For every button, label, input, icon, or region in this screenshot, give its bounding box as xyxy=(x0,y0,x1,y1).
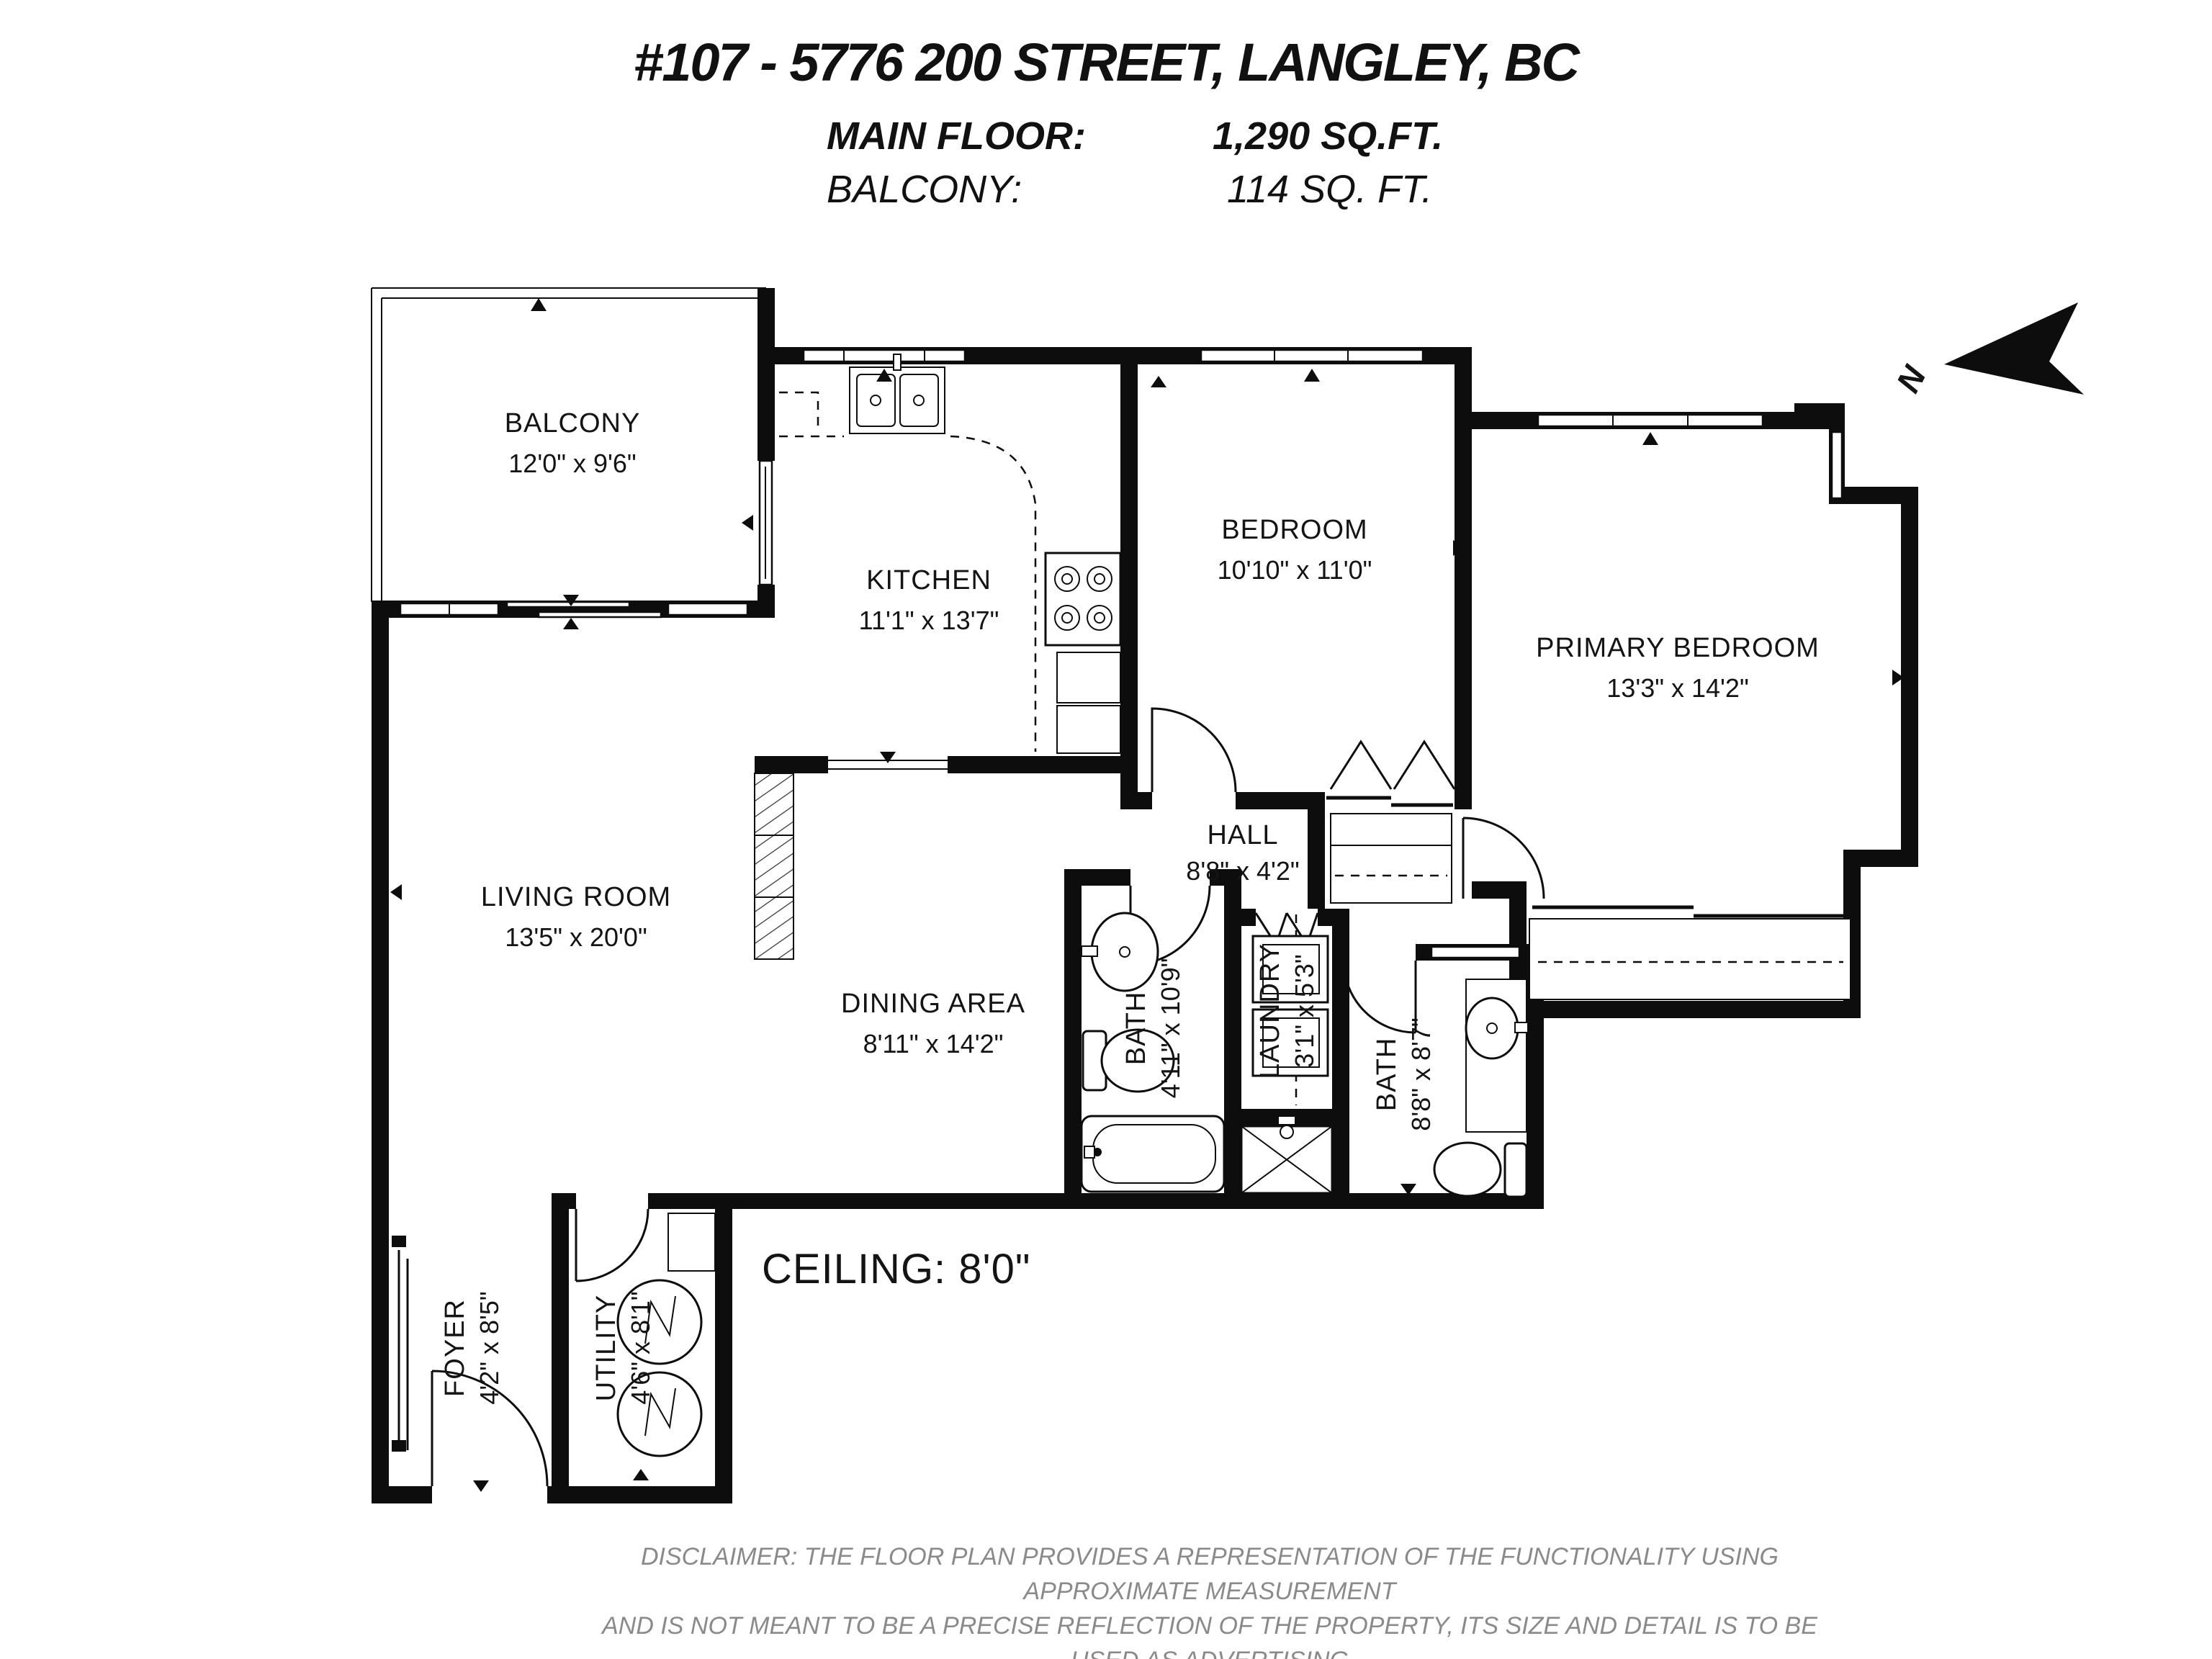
disclaimer: DISCLAIMER: THE FLOOR PLAN PROVIDES A RE… xyxy=(598,1539,1822,1659)
room-label-balcony: BALCONY 12'0" x 9'6" xyxy=(505,408,641,478)
bathtub-icon xyxy=(1082,1116,1224,1192)
chimney-hatch xyxy=(755,773,793,959)
room-dims: 4'6" x 8'1" xyxy=(626,1291,655,1404)
room-dims: 13'5" x 20'0" xyxy=(505,922,647,952)
north-label: N xyxy=(1889,359,1933,398)
primary-closet xyxy=(1529,919,1851,999)
room-name: BALCONY xyxy=(505,408,641,439)
room-label-living-room: LIVING ROOM 13'5" x 20'0" xyxy=(481,882,671,952)
room-label-dining-area: DINING AREA 8'11" x 14'2" xyxy=(841,989,1025,1058)
room-dims: 4'2" x 8'5" xyxy=(475,1291,504,1404)
room-name: UTILITY xyxy=(591,1295,621,1401)
room-name: KITCHEN xyxy=(866,565,992,595)
room-name: DINING AREA xyxy=(841,989,1025,1019)
room-name: FOYER xyxy=(440,1299,470,1397)
bath1-sink-icon xyxy=(1082,913,1158,991)
floor-plan-drawing: N BALCONY 12'0" x 9'6" KITCHEN 11'1" x 1… xyxy=(0,0,2212,1659)
room-dims: 8'11" x 14'2" xyxy=(863,1029,1004,1058)
closet-rod-icon xyxy=(1331,742,1455,789)
sliding-door xyxy=(399,1250,408,1450)
window xyxy=(668,603,747,615)
kitchen-corner-counter xyxy=(779,392,818,432)
room-name: LIVING ROOM xyxy=(481,882,671,912)
room-label-primary-bedroom: PRIMARY BEDROOM 13'3" x 14'2" xyxy=(1536,633,1820,703)
room-label-bedroom: BEDROOM 10'10" x 11'0" xyxy=(1218,515,1372,585)
room-label-bath2: BATH 8'8" x 8'7" xyxy=(1372,1017,1436,1130)
ceiling-note: CEILING: 8'0" xyxy=(762,1246,1030,1292)
room-name: PRIMARY BEDROOM xyxy=(1536,633,1820,663)
bedroom-door-arc xyxy=(1152,709,1236,792)
window xyxy=(1538,415,1763,426)
disclaimer-line: DISCLAIMER: THE FLOOR PLAN PROVIDES A RE… xyxy=(598,1539,1822,1609)
room-label-kitchen: KITCHEN 11'1" x 13'7" xyxy=(859,565,999,635)
kitchen-sink-icon xyxy=(850,354,945,433)
window xyxy=(1201,350,1423,361)
balcony-railing xyxy=(372,288,766,602)
dishwasher-icon xyxy=(1057,652,1120,703)
bedroom-closet xyxy=(1331,742,1455,903)
room-label-foyer: FOYER 4'2" x 8'5" xyxy=(440,1291,504,1404)
room-dims: 8'8" x 8'7" xyxy=(1406,1017,1436,1130)
room-dims: 8'8" x 4'2" xyxy=(1186,856,1299,886)
refrigerator-icon xyxy=(1057,706,1120,753)
north-arrow-icon xyxy=(1944,302,2084,395)
room-dims: 11'1" x 13'7" xyxy=(859,606,999,635)
disclaimer-line: AND IS NOT MEANT TO BE A PRECISE REFLECT… xyxy=(598,1609,1822,1659)
utility-door-arc xyxy=(576,1209,648,1281)
window xyxy=(1431,947,1519,958)
compass: N xyxy=(1889,302,2084,398)
bath2-toilet-icon xyxy=(1434,1143,1527,1197)
room-name: BEDROOM xyxy=(1221,515,1367,545)
sliding-door xyxy=(507,602,629,607)
stove-icon xyxy=(1046,553,1120,645)
shower-icon xyxy=(1241,1116,1332,1193)
room-dims: 13'3" x 14'2" xyxy=(1606,673,1748,703)
window xyxy=(804,350,965,361)
room-name: BATH xyxy=(1372,1038,1402,1112)
room-dims: 10'10" x 11'0" xyxy=(1218,555,1372,585)
floor-plan-page: #107 - 5776 200 STREET, LANGLEY, BC MAIN… xyxy=(0,0,2212,1659)
sliding-door xyxy=(539,612,661,617)
room-dims: 4'11" x 10'9" xyxy=(1156,958,1185,1099)
utility-shelf xyxy=(668,1213,715,1271)
room-name: LAUNDRY xyxy=(1255,943,1285,1079)
room-dims: 12'0" x 9'6" xyxy=(508,449,636,478)
room-name: HALL xyxy=(1207,820,1278,850)
window xyxy=(1832,432,1842,498)
room-dims: 3'1" x 5'3" xyxy=(1290,954,1319,1067)
room-label-hall: HALL 8'8" x 4'2" xyxy=(1186,820,1299,886)
room-name: BATH xyxy=(1121,992,1151,1066)
bath2-door-arc xyxy=(1344,961,1416,1033)
sliding-door xyxy=(1532,907,1855,916)
